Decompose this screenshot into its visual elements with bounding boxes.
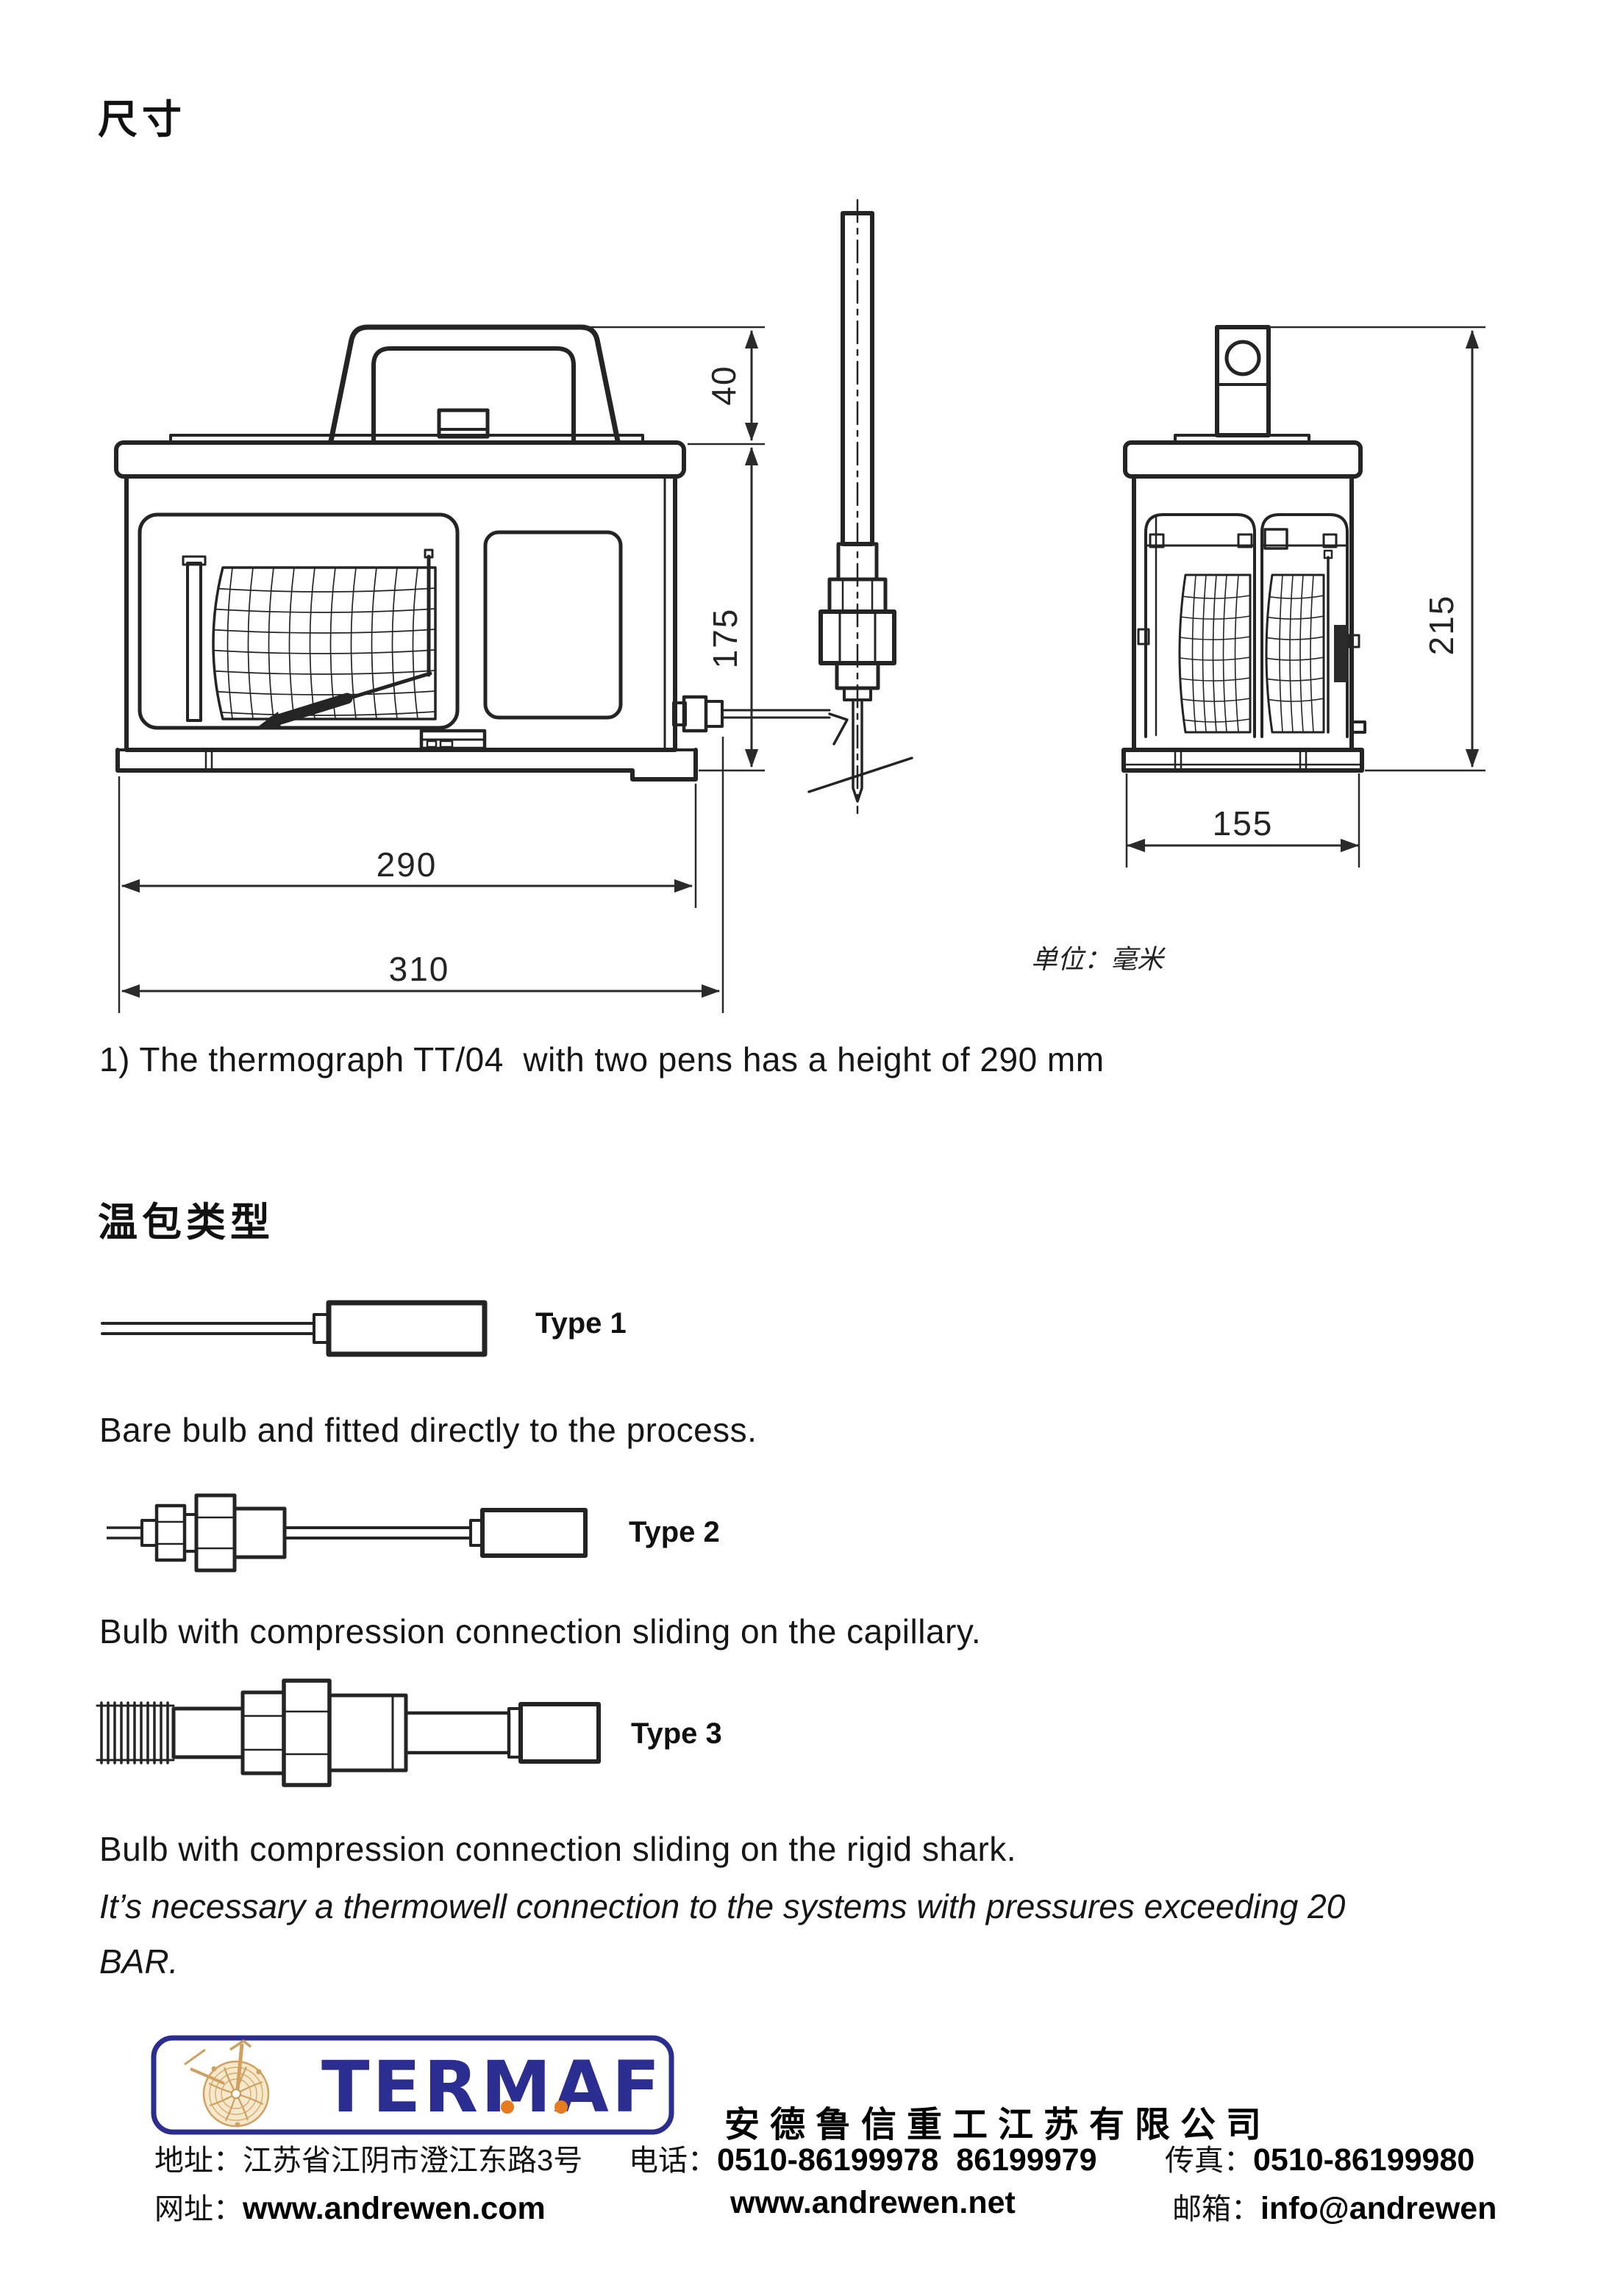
dimension-drawing: 40 175 215 290 310 155 <box>0 0 1623 1029</box>
logo-orange-dot-a <box>554 2100 568 2114</box>
type1-description: Bare bulb and fitted directly to the pro… <box>99 1410 757 1450</box>
bulb <box>329 1303 485 1354</box>
compression-nut <box>196 1495 235 1570</box>
web1-value: www.andrewen.com <box>243 2191 546 2226</box>
dim-side-height: 215 <box>1422 595 1460 656</box>
bulb-type1-drawing <box>99 1288 511 1370</box>
top-plate <box>116 443 684 476</box>
section-title-bulb-types: 温包类型 <box>98 1190 274 1248</box>
web2-value: www.andrewen.net <box>730 2185 1016 2221</box>
probe-view <box>809 200 912 813</box>
dim-width-inner: 290 <box>377 845 438 884</box>
type3-label: Type 3 <box>631 1717 722 1750</box>
web-label: 网址： <box>154 2193 243 2225</box>
email-value: info@andrewen <box>1260 2191 1497 2226</box>
pressure-note: It’s necessary a thermowell connection t… <box>99 1879 1349 1989</box>
flexible-armour <box>101 1703 168 1763</box>
termaf-logo: TERMAF <box>151 2035 674 2135</box>
datasheet-page: 尺寸 <box>0 0 1623 2296</box>
units-note: 单位：毫米 <box>1031 938 1163 976</box>
dim-handle-height: 40 <box>705 365 743 405</box>
bulb-type3-drawing <box>96 1670 603 1795</box>
phone-value: 0510-86199978 86199979 <box>717 2142 1097 2178</box>
capillary-fitting <box>684 697 706 731</box>
fax-value: 0510-86199980 <box>1253 2142 1474 2178</box>
phone-label: 电话： <box>629 2145 717 2177</box>
dimension-lines <box>119 327 1485 1013</box>
note-thermograph: 1) The thermograph TT/04 with two pens h… <box>99 1040 1105 1079</box>
type3-description: Bulb with compression connection sliding… <box>99 1829 1016 1869</box>
type2-description: Bulb with compression connection sliding… <box>99 1612 981 1651</box>
email-label: 邮箱： <box>1172 2193 1260 2225</box>
type1-label: Type 1 <box>535 1307 627 1340</box>
door-panel <box>485 532 621 718</box>
dim-side-width: 155 <box>1213 804 1274 843</box>
bulb <box>521 1704 599 1762</box>
type2-label: Type 2 <box>629 1516 720 1549</box>
fax-label: 传真： <box>1165 2145 1253 2177</box>
address-label: 地址： <box>154 2145 243 2177</box>
body-side <box>1134 476 1352 750</box>
address-value: 江苏省江阴市澄江东路3号 <box>243 2145 582 2177</box>
compression-nut <box>284 1681 329 1785</box>
dim-width-overall: 310 <box>389 950 450 988</box>
bulb <box>482 1510 585 1556</box>
dim-body-height: 175 <box>706 608 744 669</box>
base <box>118 750 696 779</box>
logo-wordmark: TERMAF <box>321 2046 663 2128</box>
side-view <box>1124 327 1365 770</box>
bulb-type2-drawing <box>107 1479 592 1589</box>
logo-orange-dot-m <box>501 2100 514 2114</box>
body <box>126 476 675 750</box>
